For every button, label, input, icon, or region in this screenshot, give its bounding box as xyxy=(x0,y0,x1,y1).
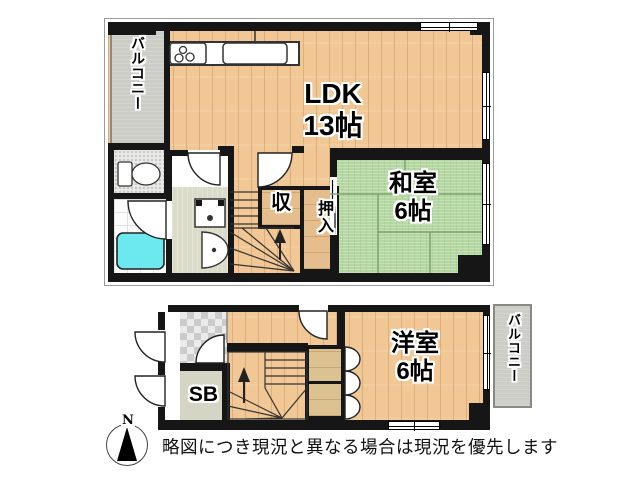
oshiire-label: 押入 xyxy=(311,200,335,234)
yoshitsu-label: 洋室 6帖 xyxy=(350,330,480,385)
yoshitsu-size: 6帖 xyxy=(350,358,480,386)
upper-floor-plan: バルコニー 和室 6帖 LDK 13帖 収 押入 xyxy=(108,22,490,282)
closet-shu-label: 収 xyxy=(258,192,304,215)
washitsu-size: 6帖 xyxy=(348,198,478,226)
upper-plan-fixtures xyxy=(108,22,490,282)
door-arc-stair-hall xyxy=(258,153,292,187)
washitsu-name: 和室 xyxy=(348,170,478,198)
toilet-icon xyxy=(118,162,160,186)
stove-icon xyxy=(170,43,206,64)
disclaimer-text: 略図につき現況と異なる場合は現況を優先します xyxy=(162,434,558,459)
stairs-lower xyxy=(228,352,307,419)
balcony-lower-label: バルコニー xyxy=(504,313,523,383)
door-arc-yoshitsu xyxy=(299,311,327,339)
ldk-label: LDK 13帖 xyxy=(258,78,408,142)
floor-plan-page: { "upper_floor": { "balcony_label": "バルコ… xyxy=(0,0,640,480)
stairs-up-arrow-lower xyxy=(238,367,250,403)
kitchen-sink-icon xyxy=(223,31,287,64)
washbasin-icon xyxy=(202,232,228,268)
door-arc-toilet-hall xyxy=(188,153,220,185)
ldk-name: LDK xyxy=(258,78,408,110)
door-arc-genkan xyxy=(196,335,224,363)
yoshitsu-name: 洋室 xyxy=(350,330,480,358)
shoe-box-label: SB xyxy=(180,383,227,407)
balcony-upper-label: バルコニー xyxy=(128,36,148,111)
lower-floor-plan: SB 洋室 6帖 バルコニー xyxy=(132,303,534,433)
door-arc-entrance-2 xyxy=(135,376,165,406)
washing-machine-icon xyxy=(195,199,225,227)
washitsu-label: 和室 6帖 xyxy=(348,170,478,225)
ldk-size: 13帖 xyxy=(258,110,408,142)
door-arc-entrance-1 xyxy=(135,332,165,362)
